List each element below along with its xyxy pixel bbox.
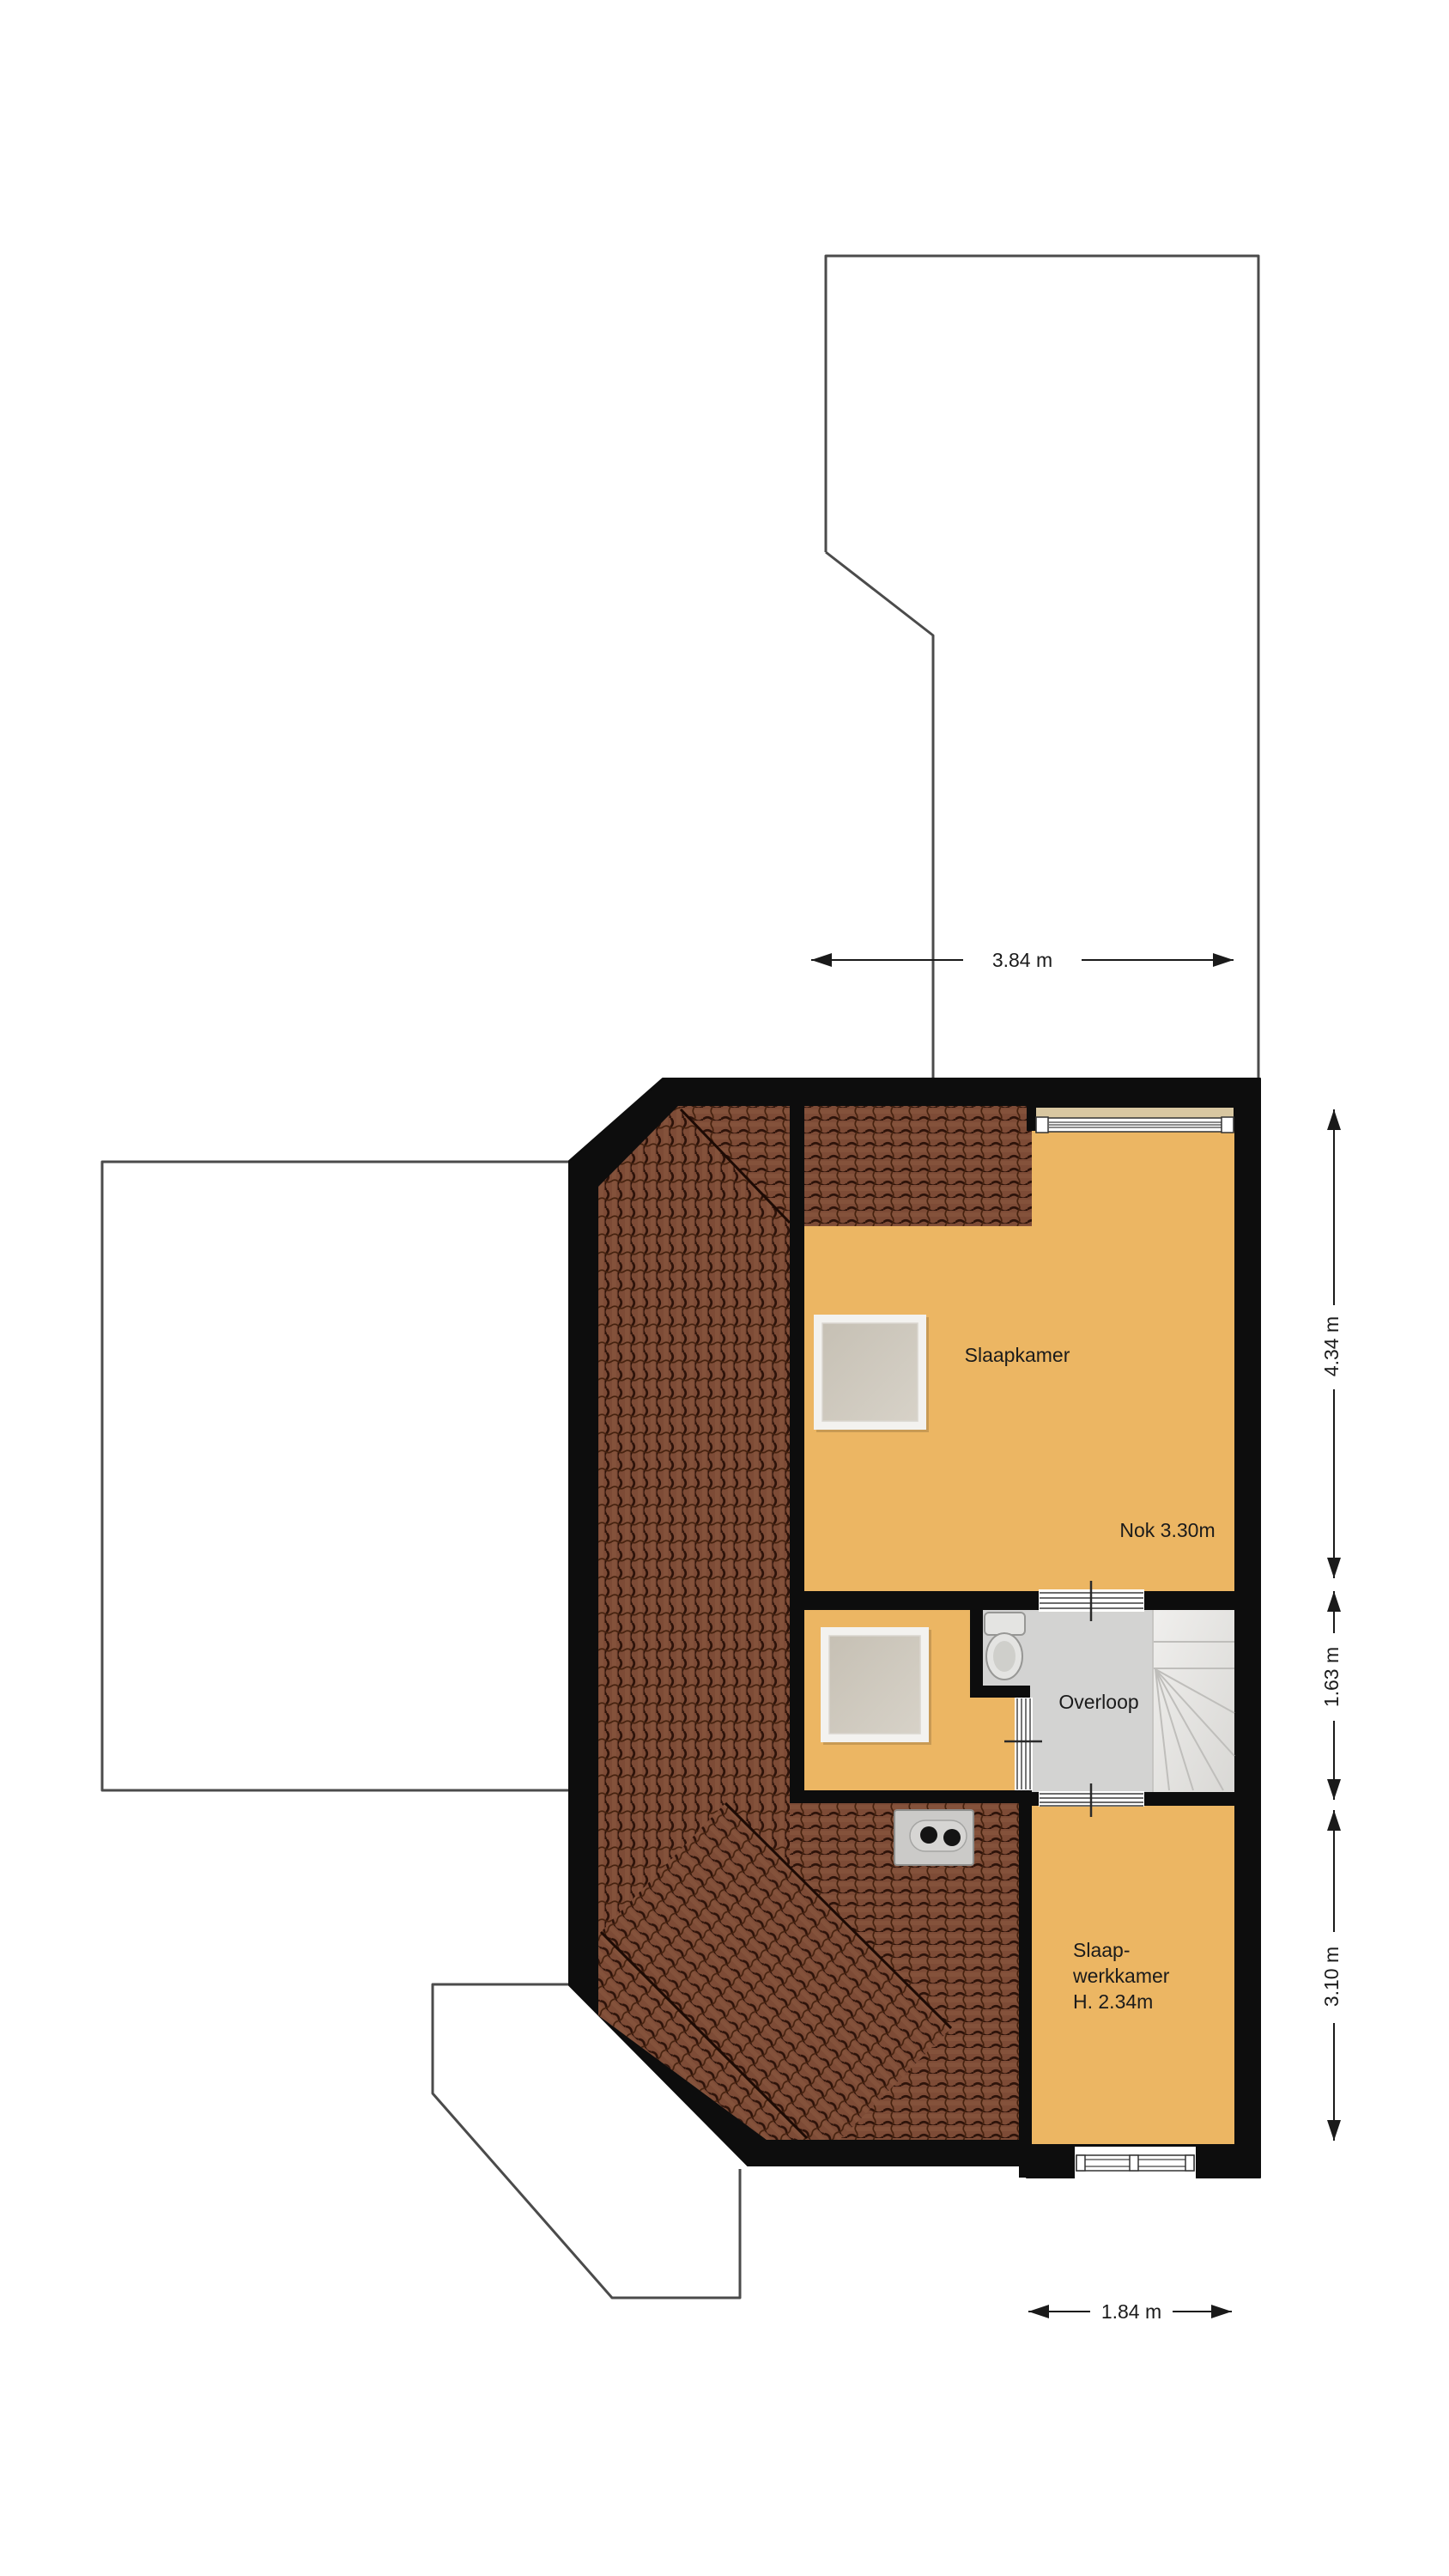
chimney-vent-icon (894, 1810, 973, 1865)
dimension-right-top-label: 4.34 m (1320, 1316, 1343, 1376)
dimension-right-middle-label: 1.63 m (1320, 1647, 1343, 1707)
window-bottom (1075, 2147, 1196, 2178)
floor-plan-drawing: Slaapkamer Nok 3.30m Overloop Slaap- wer… (0, 0, 1449, 2576)
dimension-bottom-label: 1.84 m (1101, 2300, 1161, 2323)
label-overloop: Overloop (1058, 1691, 1138, 1713)
label-werkkamer-line3: H. 2.34m (1073, 1990, 1153, 2013)
roof-band-above-slaapkamer (804, 1106, 1032, 1226)
label-werkkamer-line2: werkkamer (1072, 1965, 1170, 1987)
roof-window-small-room (821, 1627, 931, 1745)
toilet-icon (985, 1613, 1025, 1680)
floor-plan-page: Slaapkamer Nok 3.30m Overloop Slaap- wer… (0, 0, 1449, 2576)
dimension-top-label: 3.84 m (992, 949, 1052, 971)
window-top (1036, 1108, 1234, 1133)
roof-window-slaapkamer (814, 1315, 929, 1432)
label-slaapkamer: Slaapkamer (965, 1344, 1070, 1366)
staircase (1153, 1607, 1234, 1792)
label-werkkamer-line1: Slaap- (1073, 1939, 1130, 1961)
label-nok-height: Nok 3.30m (1119, 1519, 1215, 1541)
dimension-right-bottom-label: 3.10 m (1320, 1947, 1343, 2007)
left-building-outline (102, 1162, 569, 1790)
